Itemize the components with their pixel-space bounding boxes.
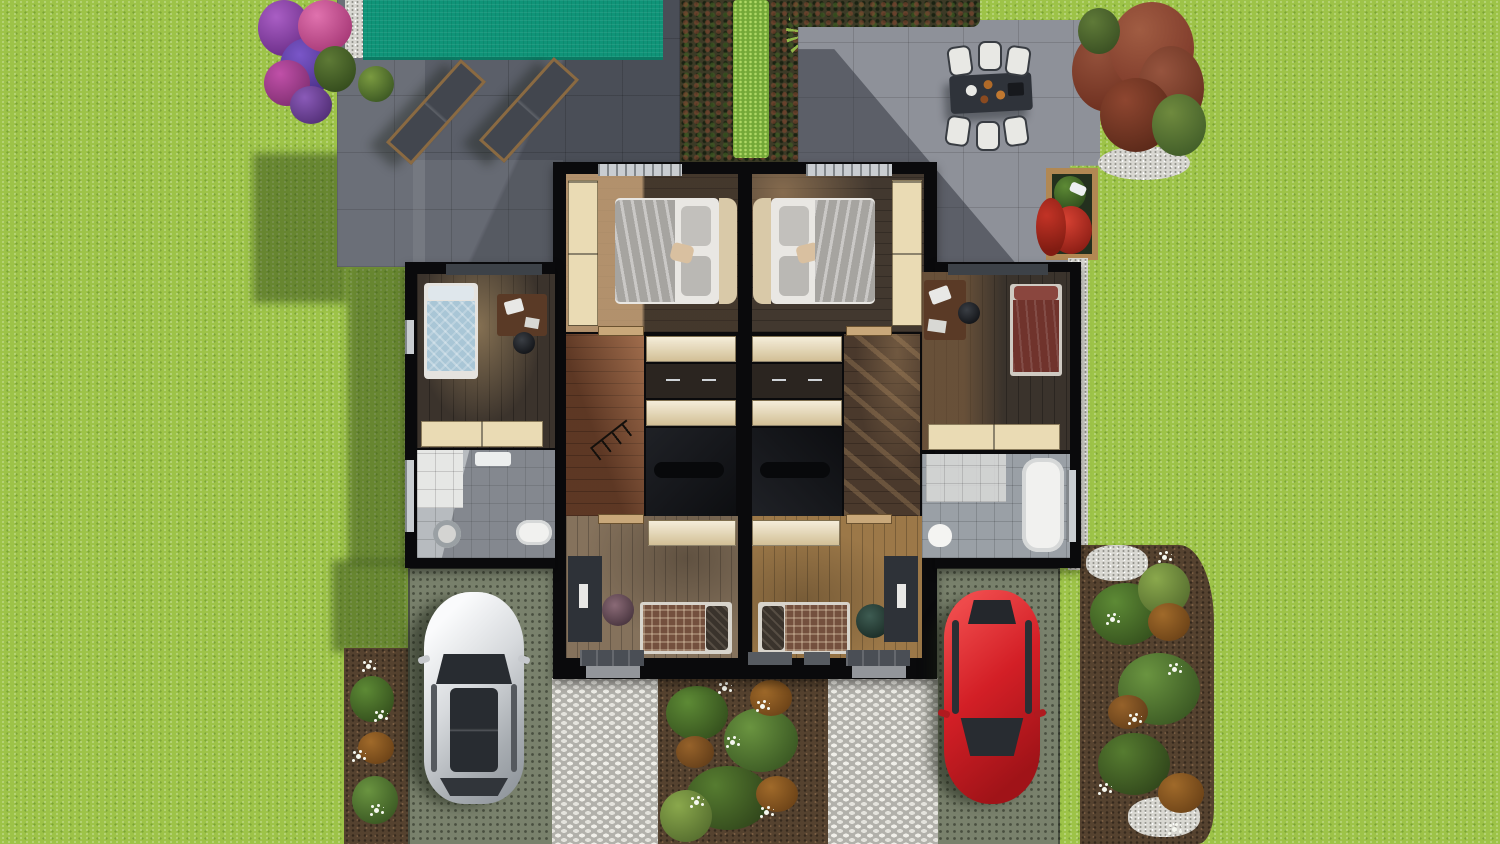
white-flower-cluster (730, 740, 735, 745)
dark-dresser (646, 364, 736, 398)
desk (884, 556, 918, 642)
headboard (719, 198, 737, 304)
sun-lounger-right (479, 57, 579, 163)
food-bowl (983, 80, 992, 89)
bathroom-right (922, 454, 1070, 558)
stair-railing (590, 420, 636, 461)
double-bed (753, 198, 875, 304)
desk-chair (958, 302, 980, 324)
dresser-handle (772, 379, 786, 381)
shrub-blob (1078, 8, 1120, 54)
red-car (944, 590, 1042, 808)
car-windshield (436, 654, 512, 684)
door-threshold (846, 514, 892, 524)
single-bed-plaid (640, 602, 732, 654)
laptop (504, 298, 525, 315)
white-flower-cluster (356, 754, 361, 759)
white-flower-cluster (1132, 717, 1137, 722)
hall-cabinet (752, 400, 842, 426)
car-side-window (431, 684, 437, 772)
cabinet-column-left (646, 334, 736, 516)
window-bottom-wall (804, 652, 830, 665)
door-threshold (598, 326, 644, 336)
planting-bed-right (1080, 545, 1214, 844)
walkway-left (552, 678, 658, 844)
car-rear-window (968, 600, 1016, 624)
office-left (566, 516, 738, 658)
car-side-window (952, 620, 959, 714)
bathtub (516, 520, 552, 545)
bed-shrub (724, 708, 798, 772)
planting-bed-center (658, 678, 828, 844)
pillow (681, 206, 711, 246)
white-flower-cluster (378, 714, 383, 719)
white-flower-cluster (722, 686, 727, 691)
window-wing-left-side (405, 320, 414, 354)
bed-grass-light (660, 790, 712, 842)
office-right (752, 516, 922, 658)
scene-floor-plan-render (0, 0, 1500, 844)
window-wing-left-top (446, 264, 542, 275)
swimming-pool (363, 0, 663, 60)
flower-blob (290, 86, 332, 124)
papers (524, 317, 540, 329)
terrace-shrub (358, 66, 394, 102)
dining-chair (1002, 114, 1030, 147)
walkway-right (828, 678, 938, 844)
laptop (928, 285, 952, 305)
master-bedroom-right (752, 174, 924, 332)
low-cabinet-row (928, 424, 1060, 450)
car-sunroof (450, 688, 498, 772)
blue-blanket (427, 301, 475, 371)
white-car (424, 592, 524, 808)
bed-shrub (352, 776, 398, 824)
desk (497, 294, 547, 336)
white-flower-cluster (1172, 827, 1177, 832)
cabinet (648, 520, 736, 546)
bathtub (1022, 458, 1064, 552)
wardrobe (892, 180, 922, 326)
desk (568, 556, 602, 642)
red-blanket (1013, 300, 1059, 372)
white-flower-cluster (374, 808, 379, 813)
plaid-blanket (643, 605, 705, 651)
master-bedroom-left (566, 174, 738, 332)
window-top-right (806, 164, 892, 176)
window-bathroom-left (405, 460, 414, 532)
flower-blob (298, 0, 352, 52)
white-flower-cluster (764, 810, 769, 815)
office-chair-mauve (602, 594, 634, 626)
house-shadow-on-grass (332, 560, 410, 652)
entry-door-left (580, 650, 644, 666)
car-side-window (1025, 620, 1032, 714)
hall-cabinet (752, 336, 842, 362)
double-bed (615, 198, 737, 304)
bed-shrub (350, 676, 394, 722)
shrub-blob (1152, 94, 1206, 156)
papers (927, 319, 946, 333)
dining-chair (946, 44, 974, 77)
monitor (579, 584, 588, 608)
dining-chair (978, 41, 1002, 71)
sink (475, 452, 511, 466)
bed-grass-brown (358, 732, 394, 764)
blanket (815, 200, 875, 302)
bed-grass-brown (750, 680, 792, 716)
bed-grass-brown (676, 736, 714, 768)
kids-bedroom-blue (417, 274, 555, 448)
dark-dresser (752, 364, 842, 398)
red-leaf-shrub (1072, 2, 1204, 168)
bed-grass-brown (1158, 773, 1204, 813)
white-flower-cluster (1110, 617, 1115, 622)
door-threshold (846, 326, 892, 336)
white-flower-cluster (760, 704, 765, 709)
hall-cabinet (646, 336, 736, 362)
food-bowl (980, 95, 988, 103)
dining-chair (976, 121, 1000, 151)
dining-chair (1004, 44, 1032, 77)
bed-gravel-patch (1086, 545, 1148, 581)
house-shadow-on-grass (253, 153, 347, 303)
bed-grass-brown (756, 776, 798, 812)
desk-chair (513, 332, 535, 354)
white-flower-cluster (694, 800, 699, 805)
hedge-bright-column (733, 0, 769, 158)
wardrobe (568, 180, 598, 326)
cabinet-column-right (752, 334, 842, 516)
dining-table (949, 72, 1033, 114)
round-stool (433, 520, 461, 548)
planting-bed-left (344, 648, 408, 844)
car-rear-window (440, 778, 508, 796)
entry-step-left (586, 666, 640, 678)
food-bowl (996, 90, 1005, 99)
red-flower-spill (1036, 198, 1066, 256)
entry-step-right (852, 666, 906, 678)
dresser-handle (666, 379, 680, 381)
hallway-left (566, 334, 644, 516)
dark-pillow (706, 606, 728, 650)
plaid-blanket (785, 605, 847, 651)
entry-door-right (846, 650, 910, 666)
bed-grass-brown (1108, 695, 1148, 729)
pillow (1014, 286, 1058, 300)
dresser-handle (702, 379, 716, 381)
window-bottom-wall (748, 652, 792, 665)
window-wing-right-top (948, 264, 1048, 275)
kids-bedroom-red (922, 272, 1070, 450)
single-bed-blue (424, 283, 478, 379)
bed-grass-brown (1148, 603, 1190, 641)
single-bed-red (1010, 284, 1062, 376)
cabinet (752, 520, 840, 546)
toilet (928, 524, 952, 547)
flower-blob (314, 46, 356, 92)
window-top-left (598, 164, 682, 176)
stairwell (752, 428, 842, 516)
hedge-screen (680, 0, 800, 163)
stair-bench (654, 462, 724, 478)
hall-cabinet (646, 400, 736, 426)
terrace-light-patch (413, 160, 563, 267)
plate (966, 85, 978, 97)
car-side-window (511, 684, 517, 772)
stairwell (646, 428, 736, 516)
bed-shrub (666, 686, 728, 740)
hallway-right (844, 334, 920, 516)
house-shadow-on-grass (348, 263, 408, 565)
shower-area (926, 454, 1006, 502)
white-flower-cluster (366, 664, 371, 669)
white-flower-cluster (1172, 667, 1177, 672)
stair-bench (760, 462, 830, 478)
blanket (615, 200, 675, 302)
dresser-handle (808, 379, 822, 381)
pillow (779, 206, 809, 246)
single-bed-plaid (758, 602, 850, 654)
white-flower-cluster (1102, 787, 1107, 792)
bathroom-left (417, 450, 555, 558)
door-threshold (598, 514, 644, 524)
serving-tray (1008, 82, 1025, 96)
monitor (897, 584, 906, 608)
patio-top-hedge (790, 0, 980, 27)
headboard (753, 198, 771, 304)
low-cabinet-row (421, 421, 543, 447)
dark-pillow (762, 606, 784, 650)
white-flower-cluster (1162, 555, 1167, 560)
pillow (428, 286, 474, 300)
window-bathroom-right (1067, 470, 1076, 542)
shower-area (417, 450, 463, 508)
dining-chair (944, 114, 972, 147)
